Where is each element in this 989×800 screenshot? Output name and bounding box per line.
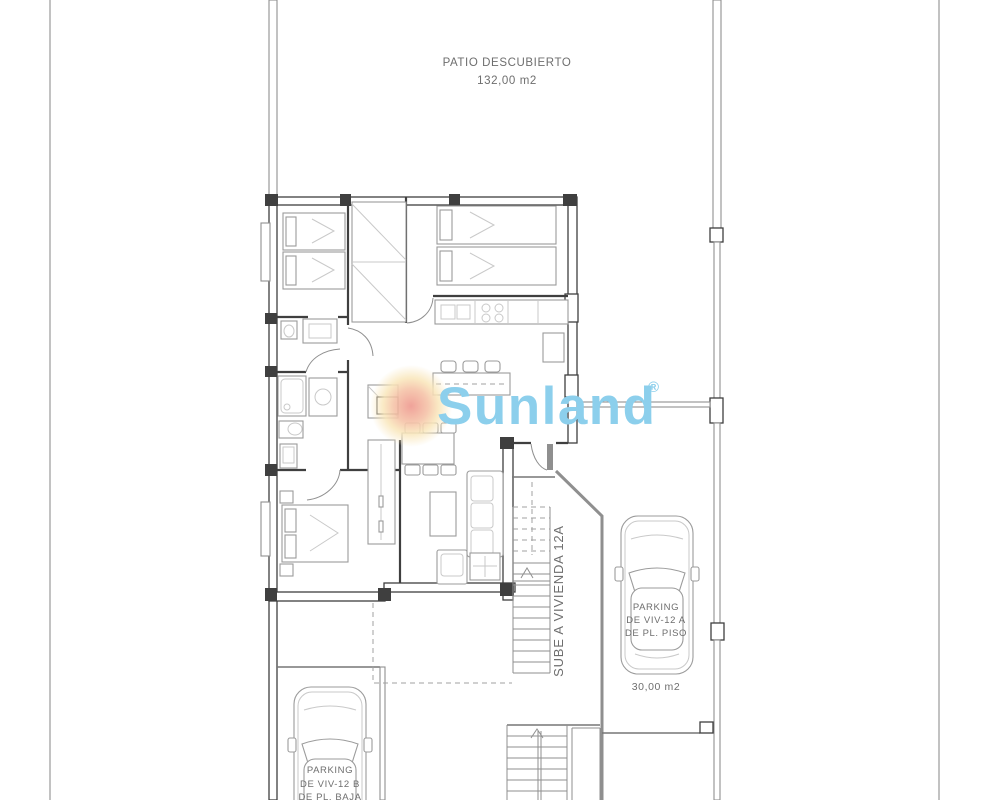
bed [437, 247, 556, 285]
exterior-wall-right-lower [503, 443, 513, 600]
parking-b-label-3: DE PL. BAJA [298, 792, 361, 800]
pillow [286, 217, 296, 246]
nightstand [280, 491, 293, 503]
wall-pillar [711, 623, 724, 640]
parking-a-label-1: PARKING [633, 602, 679, 613]
appliance [543, 333, 564, 362]
sofa [467, 471, 503, 557]
stairs-label: SUBE A VIVIENDA 12A [551, 525, 566, 677]
floorplan-page: PATIO DESCUBIERTO 132,00 m2 SUBE A VIVIE… [0, 0, 989, 800]
stair-treads [507, 736, 567, 791]
stair-treads [513, 563, 550, 673]
parking-a-label-2: DE VIV-12 A [626, 615, 685, 626]
parking-a-area: 30,00 m2 [632, 681, 681, 693]
watermark: Sunland ® [370, 365, 659, 447]
patio-wall-left [269, 0, 277, 197]
coffee-table [430, 492, 456, 536]
exterior-wall-bottom-left [269, 592, 385, 601]
parking-b-wall [380, 667, 385, 800]
bed [437, 206, 556, 244]
parking-a-label-3: DE PL. PISO [625, 628, 687, 639]
registered-mark: ® [648, 379, 659, 396]
brand-logo-text: Sunland [437, 377, 657, 436]
patio-wall-right-bottom [714, 640, 720, 800]
parking-dashed-boundary [373, 603, 512, 683]
door-arc-hall [348, 328, 373, 356]
pillow [285, 509, 296, 532]
entrance-door-leaf [547, 444, 553, 470]
patio-label: PATIO DESCUBIERTO [443, 57, 572, 69]
bathroom-fixtures [278, 319, 337, 468]
wall-pillar [700, 722, 713, 733]
wall-pillar [710, 398, 723, 423]
door-arc-bedroom3 [307, 470, 340, 500]
bedroom-1-furniture [283, 213, 345, 289]
stool [485, 361, 500, 372]
stool [463, 361, 478, 372]
parking-b-label-1: PARKING [307, 765, 353, 776]
shower [278, 376, 306, 416]
sink-counter [303, 319, 337, 343]
bedroom-3-furniture [280, 491, 348, 576]
door-arc-entrance [531, 444, 547, 470]
nightstand [280, 564, 293, 576]
staircase-lower [507, 722, 713, 800]
wall-pillar [710, 228, 723, 242]
window-bedroom-1 [261, 223, 270, 281]
pillow [440, 251, 452, 281]
chair [405, 465, 420, 475]
chair [423, 465, 438, 475]
closet-wardrobe [352, 202, 406, 322]
pillow [286, 256, 296, 285]
patio-wall-right-lower [714, 423, 720, 623]
pillow [440, 210, 452, 240]
patio-wall-right-upper [713, 0, 721, 228]
patio-wall-right-mid [714, 242, 720, 398]
floorplan-drawing: PATIO DESCUBIERTO 132,00 m2 SUBE A VIVIE… [0, 0, 989, 800]
parking-b-label-2: DE VIV-12 B [300, 779, 360, 790]
car-parking-a [615, 516, 699, 674]
door-arc-kitchen [407, 298, 433, 323]
bedroom-2-furniture [437, 206, 556, 285]
door-arc-bathroom [306, 349, 340, 372]
stool [441, 361, 456, 372]
pillow [285, 535, 296, 558]
washing-machine [309, 378, 337, 416]
patio-area: 132,00 m2 [477, 75, 537, 87]
chair [441, 465, 456, 475]
exterior-wall-top [269, 197, 569, 205]
window-bedroom-3 [261, 502, 270, 556]
exterior-wall-left [269, 197, 277, 800]
toilet [281, 321, 297, 339]
